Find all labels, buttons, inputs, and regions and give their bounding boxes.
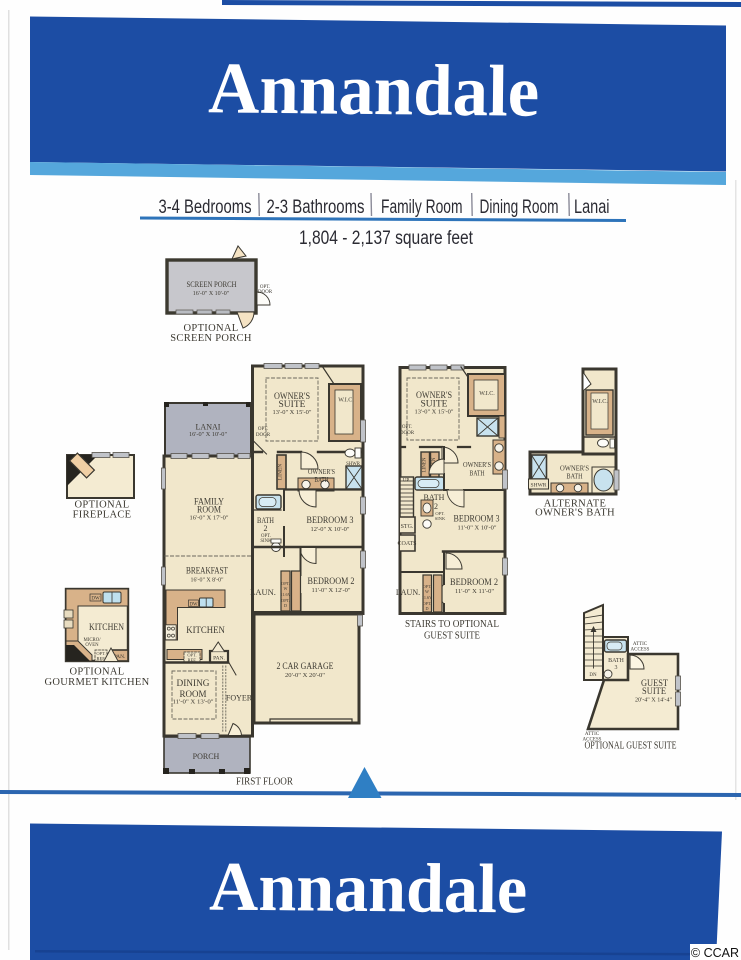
svg-text:PAN.: PAN. [213, 656, 225, 662]
svg-text:D: D [425, 606, 428, 611]
svg-text:BREAKFAST: BREAKFAST [186, 566, 228, 576]
svg-text:LINEN: LINEN [423, 457, 428, 472]
svg-text:STAIRS TO OPTIONAL: STAIRS TO OPTIONAL [405, 619, 499, 630]
svg-text:OPT.: OPT. [402, 425, 412, 430]
svg-text:LAUN.: LAUN. [396, 588, 420, 597]
svg-text:OWNER'S BATH: OWNER'S BATH [535, 508, 615, 519]
svg-text:SINK: SINK [260, 539, 272, 544]
svg-text:SCREEN PORCH: SCREEN PORCH [170, 333, 252, 344]
svg-text:2-3 Bathrooms: 2-3 Bathrooms [267, 197, 365, 218]
svg-text:3-4 Bedrooms: 3-4 Bedrooms [159, 197, 252, 218]
svg-text:DW: DW [91, 597, 100, 602]
svg-text:Annandale: Annandale [209, 849, 528, 929]
svg-text:DN: DN [589, 673, 597, 678]
svg-text:W.I.C.: W.I.C. [592, 399, 608, 405]
svg-text:© CCAR: © CCAR [691, 946, 739, 960]
svg-text:GUEST SUITE: GUEST SUITE [424, 631, 480, 642]
svg-text:FIRST FLOOR: FIRST FLOOR [236, 776, 294, 788]
svg-text:STG.: STG. [401, 524, 414, 530]
svg-text:Dining Room: Dining Room [480, 197, 559, 218]
svg-text:ATTIC: ATTIC [633, 642, 648, 647]
svg-text:FOYER: FOYER [226, 694, 253, 703]
svg-text:3: 3 [615, 665, 618, 671]
svg-text:ROOM: ROOM [180, 689, 207, 699]
svg-text:11'-0" X 10'-0": 11'-0" X 10'-0" [458, 526, 498, 532]
svg-text:16'-0" X 10'-0": 16'-0" X 10'-0" [193, 291, 230, 297]
svg-text:16'-0" X 10'-0": 16'-0" X 10'-0" [189, 432, 228, 438]
svg-text:SUITE: SUITE [279, 399, 307, 409]
svg-text:W: W [425, 589, 429, 594]
svg-text:OPTIONAL GUEST SUITE: OPTIONAL GUEST SUITE [585, 741, 677, 752]
svg-text:13'-0" X 15'-0": 13'-0" X 15'-0" [273, 410, 313, 416]
svg-text:Family Room: Family Room [381, 197, 463, 218]
svg-text:ACCESS: ACCESS [631, 648, 650, 653]
svg-text:SCREEN PORCH: SCREEN PORCH [187, 280, 237, 289]
svg-text:12'-0" X 10'-0": 12'-0" X 10'-0" [311, 527, 351, 533]
svg-text:SHWR: SHWR [531, 483, 547, 489]
svg-text:11.6V: 11.6V [280, 592, 290, 597]
svg-text:W: W [284, 586, 288, 591]
svg-text:Lanai: Lanai [574, 197, 610, 218]
svg-text:W.I.C.: W.I.C. [479, 391, 495, 397]
svg-text:2: 2 [264, 524, 268, 533]
svg-text:BATH: BATH [424, 493, 445, 502]
svg-text:W.I.C.: W.I.C. [338, 398, 354, 404]
svg-text:BEDROOM 2: BEDROOM 2 [450, 577, 498, 587]
svg-text:2: 2 [434, 502, 438, 511]
svg-text:11'-0" X 11'-0": 11'-0" X 11'-0" [455, 589, 495, 595]
svg-text:D: D [284, 603, 287, 608]
svg-text:COATS: COATS [397, 541, 416, 547]
svg-text:BEDROOM 3: BEDROOM 3 [454, 514, 500, 524]
svg-text:KITCHEN: KITCHEN [186, 625, 225, 635]
svg-text:2 CAR GARAGE: 2 CAR GARAGE [277, 661, 334, 672]
svg-text:PORCH: PORCH [193, 752, 220, 761]
svg-text:LAUN.: LAUN. [250, 587, 276, 597]
svg-text:11'-0" X 12'-0": 11'-0" X 12'-0" [312, 588, 352, 594]
svg-text:LANAI: LANAI [196, 423, 221, 432]
svg-text:ATTIC: ATTIC [585, 732, 600, 737]
svg-text:BATH: BATH [567, 472, 583, 481]
svg-text:LINEN: LINEN [278, 464, 284, 481]
svg-text:KITCHEN: KITCHEN [89, 622, 124, 632]
svg-text:BEDROOM 2: BEDROOM 2 [308, 576, 355, 586]
svg-text:DINING: DINING [177, 678, 211, 688]
svg-text:11'-0" X 13'-0": 11'-0" X 13'-0" [173, 700, 215, 706]
svg-text:DW: DW [190, 602, 198, 607]
svg-text:GOURMET KITCHEN: GOURMET KITCHEN [45, 677, 150, 688]
svg-text:DOOR: DOOR [258, 290, 273, 295]
svg-text:20'-0" X 20'-0": 20'-0" X 20'-0" [285, 673, 326, 679]
svg-text:FIREPLACE: FIREPLACE [73, 510, 132, 521]
svg-text:OPT.: OPT. [258, 427, 268, 432]
svg-text:16'-0" X 8'-0": 16'-0" X 8'-0" [191, 578, 225, 584]
svg-text:13'-0" X 15'-0": 13'-0" X 15'-0" [415, 410, 455, 416]
svg-text:20'-4" X 14'-4": 20'-4" X 14'-4" [635, 698, 673, 704]
svg-text:BATH: BATH [470, 469, 485, 478]
svg-text:ROOM: ROOM [197, 505, 221, 515]
svg-text:16'-0" X 17'-0": 16'-0" X 17'-0" [190, 516, 230, 522]
svg-text:DOOR: DOOR [400, 431, 415, 436]
svg-text:SUITE: SUITE [642, 686, 666, 696]
svg-text:SINK: SINK [435, 516, 446, 521]
svg-text:Annandale: Annandale [208, 47, 540, 131]
svg-text:DOOR: DOOR [256, 433, 271, 438]
svg-text:OPTIONAL: OPTIONAL [70, 667, 125, 678]
svg-text:SUITE: SUITE [421, 399, 449, 409]
svg-text:11.6V: 11.6V [422, 595, 432, 600]
svg-text:OVEN: OVEN [85, 643, 99, 648]
svg-text:BATH: BATH [315, 475, 329, 484]
svg-text:1,804 - 2,137 square feet: 1,804 - 2,137 square feet [299, 228, 474, 249]
svg-text:UP: UP [403, 479, 410, 484]
svg-text:BATH: BATH [608, 658, 624, 664]
svg-text:BEDROOM 3: BEDROOM 3 [307, 515, 354, 525]
